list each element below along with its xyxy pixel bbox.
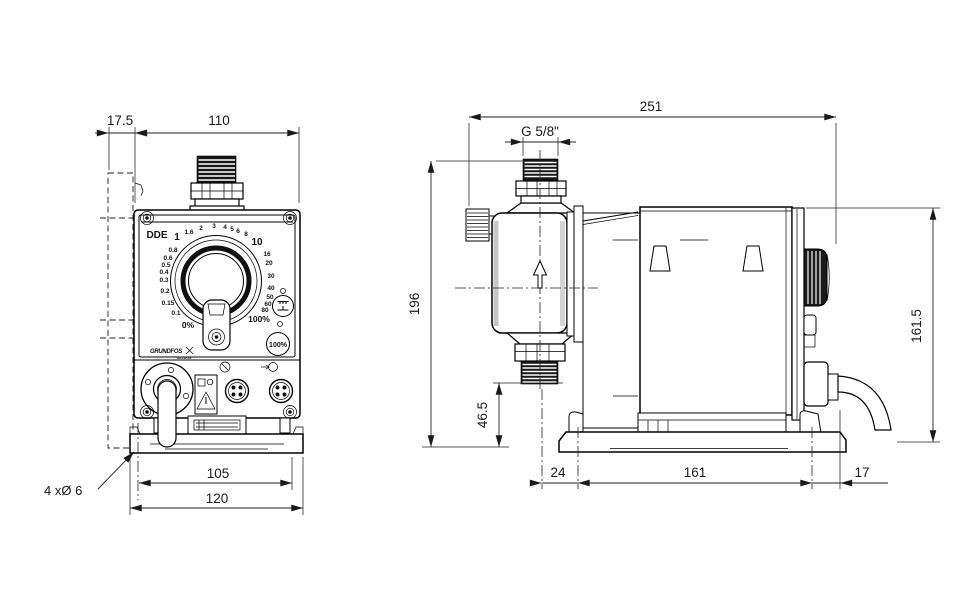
dial-max-label: 100% xyxy=(248,314,270,324)
power-cable xyxy=(838,376,891,430)
head-top-transition xyxy=(507,203,575,213)
dial-scale-label: 5 xyxy=(230,226,234,233)
back-panel xyxy=(792,208,804,420)
dim-height: 196 xyxy=(407,293,422,316)
vent-slot xyxy=(743,246,763,271)
dim-valve-height: 46.5 xyxy=(475,402,490,428)
dial-scale-label: 8 xyxy=(244,231,248,238)
dial-scale-label: 4 xyxy=(223,224,227,231)
priming-button[interactable] xyxy=(273,296,294,317)
foot-tab xyxy=(280,418,290,433)
dim-rear-height: 161.5 xyxy=(909,309,924,343)
dial-scale-label: 0.6 xyxy=(163,255,172,262)
head-bottom-transition xyxy=(507,333,575,344)
cable-gland xyxy=(804,362,838,406)
capacity-button-label: 100% xyxy=(269,342,288,349)
dim-hole-spacing-side: 161 xyxy=(684,465,707,480)
wall-bracket-outline xyxy=(108,173,133,448)
valve-collar xyxy=(521,196,561,203)
dial-scale-label: 30 xyxy=(267,273,275,280)
power-cable-front xyxy=(158,381,176,447)
drawing-canvas: DDE 1 1.6 2 3 4 5 6 8 10 16 20 30 40 50 … xyxy=(0,0,976,600)
front-view: DDE 1 1.6 2 3 4 5 6 8 10 16 20 30 40 50 … xyxy=(44,113,303,515)
dial-scale-label: 0.2 xyxy=(160,288,169,295)
base-plate-side xyxy=(559,432,846,452)
dial-scale-label: 50 xyxy=(266,294,274,301)
brand-name: GRUNDFOS xyxy=(150,349,182,355)
front-foot xyxy=(569,412,583,433)
dim-bracket-depth: 17.5 xyxy=(107,113,133,128)
model-label: DDE xyxy=(146,230,167,241)
dial-scale-label: 0.4 xyxy=(159,269,168,276)
rear-foot xyxy=(800,411,821,433)
adapter-bracket xyxy=(583,212,640,428)
vent-slot xyxy=(650,246,670,271)
base-lip xyxy=(130,427,140,434)
bracket-hook xyxy=(135,183,143,196)
base-clamp-side xyxy=(638,413,786,432)
head-shading xyxy=(560,221,565,326)
head-body xyxy=(492,213,567,333)
mounting-base-front xyxy=(130,416,303,453)
dim-length: 251 xyxy=(640,99,663,114)
dim-rear-offset: 17 xyxy=(854,465,869,480)
dim-thread: G 5/8" xyxy=(521,124,559,139)
dial-scale-label: 3 xyxy=(212,223,216,230)
dial-scale-label: 80 xyxy=(261,307,269,314)
dial-scale-label: 0.5 xyxy=(161,262,170,269)
dial-scale-label: 40 xyxy=(267,285,275,292)
head-plate xyxy=(567,212,574,336)
dial-scale-label: 10 xyxy=(251,237,263,248)
head-plate xyxy=(574,206,583,342)
discharge-valve xyxy=(516,159,566,203)
dim-base-width: 120 xyxy=(206,491,229,506)
brand-sub: ALLDOS xyxy=(177,356,192,360)
base-clamp xyxy=(188,416,246,434)
base-plate xyxy=(130,434,303,453)
dial-scale-label: 0.15 xyxy=(162,300,175,307)
vent-knob[interactable] xyxy=(466,209,495,241)
dial-pointer[interactable] xyxy=(203,300,230,350)
dial-scale-label: 1.6 xyxy=(184,229,193,236)
dial-min-label: 0% xyxy=(182,320,195,330)
dim-mounting-holes: 4 xØ 6 xyxy=(44,483,82,498)
capacity-100-button[interactable]: 100% xyxy=(267,333,290,356)
dial-scale-label: 2 xyxy=(199,225,203,232)
discharge-connector-front xyxy=(190,156,244,212)
warning-label xyxy=(195,375,217,414)
dim-hole-spacing: 105 xyxy=(207,466,230,481)
dial-scale-label: 1 xyxy=(174,232,180,243)
side-view: 251 G 5/8" 196 46.5 161.5 xyxy=(407,99,940,489)
dial-scale-label: 20 xyxy=(265,260,273,267)
latch xyxy=(804,315,816,347)
dim-front-offset: 24 xyxy=(550,465,566,480)
dial-scale-label: 0.3 xyxy=(159,277,168,284)
motor-body xyxy=(640,207,792,415)
dial-scale-label: 6 xyxy=(236,228,240,235)
base-lip xyxy=(293,427,303,434)
dial-scale-label: 0.1 xyxy=(171,310,180,317)
dial-scale-label: 16 xyxy=(263,251,271,258)
head-shading xyxy=(494,221,499,326)
dial-scale-label: 0.8 xyxy=(168,247,177,254)
stroke-adjustment-knob[interactable] xyxy=(804,249,829,306)
dim-width: 110 xyxy=(208,113,230,128)
